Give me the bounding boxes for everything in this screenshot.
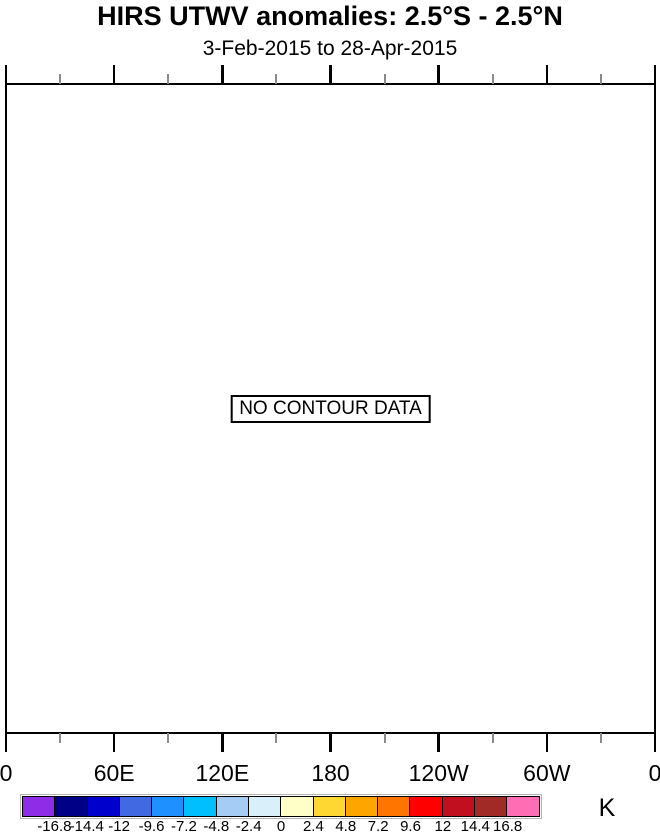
colorbar-tick-label: -12: [108, 818, 130, 834]
colorbar-tick-label: -14.4: [70, 818, 104, 834]
colorbar-tick-label: 2.4: [303, 818, 324, 834]
colorbar-cell: [22, 796, 56, 817]
top-minor-tick: [167, 74, 169, 84]
colorbar-cell: [248, 796, 282, 817]
colorbar-tick-label: 7.2: [368, 818, 389, 834]
plot-title: HIRS UTWV anomalies: 2.5°S - 2.5°N: [0, 1, 660, 32]
x-axis-tick-label: 180: [311, 760, 349, 787]
colorbar-cell: [216, 796, 250, 817]
bottom-minor-tick: [167, 733, 169, 743]
x-axis-tick-label: 60E: [94, 760, 135, 787]
colorbar-tick-label: 0: [277, 818, 285, 834]
colorbar-tick-label: 12: [435, 818, 452, 834]
x-axis-tick-label: 120E: [195, 760, 249, 787]
colorbar-cell: [442, 796, 476, 817]
top-major-tick: [546, 65, 549, 84]
bottom-minor-tick: [275, 733, 277, 743]
colorbar-tick-label: -9.6: [139, 818, 165, 834]
x-axis-tick-label: 120W: [409, 760, 469, 787]
colorbar-tick-label: -16.8: [37, 818, 71, 834]
x-axis-tick-label: 60W: [523, 760, 570, 787]
x-axis-tick-label: 0: [0, 760, 12, 787]
plot-frame: HIRS UTWV anomalies: 2.5°S - 2.5°N 3-Feb…: [0, 0, 660, 834]
colorbar-cell: [506, 796, 540, 817]
top-major-tick: [5, 65, 8, 84]
colorbar-unit-label: K: [585, 794, 629, 823]
colorbar-tick-label: 4.8: [335, 818, 356, 834]
bottom-minor-tick: [59, 733, 61, 743]
bottom-major-tick: [329, 733, 332, 752]
colorbar-cell: [345, 796, 379, 817]
colorbar-cell: [377, 796, 411, 817]
x-axis-tick-label: 0: [649, 760, 660, 787]
top-major-tick: [221, 65, 224, 84]
bottom-major-tick: [546, 733, 549, 752]
top-minor-tick: [492, 74, 494, 84]
colorbar-cell: [313, 796, 347, 817]
colorbar-cell: [409, 796, 443, 817]
top-minor-tick: [600, 74, 602, 84]
colorbar-cell: [87, 796, 121, 817]
top-minor-tick: [384, 74, 386, 84]
top-major-tick: [654, 65, 657, 84]
bottom-major-tick: [654, 733, 657, 752]
bottom-major-tick: [113, 733, 116, 752]
colorbar-tick-label: 9.6: [400, 818, 421, 834]
colorbar-cell: [474, 796, 508, 817]
top-major-tick: [329, 65, 332, 84]
bottom-major-tick: [5, 733, 8, 752]
colorbar-tick-label: -4.8: [203, 818, 229, 834]
colorbar-cell: [54, 796, 88, 817]
colorbar-cell: [183, 796, 217, 817]
bottom-minor-tick: [600, 733, 602, 743]
colorbar-cell: [280, 796, 314, 817]
plot-subtitle: 3-Feb-2015 to 28-Apr-2015: [0, 37, 660, 61]
colorbar-cell: [119, 796, 153, 817]
no-contour-data-box: NO CONTOUR DATA: [230, 395, 431, 423]
colorbar-tick-label: -2.4: [236, 818, 262, 834]
colorbar-tick-label: 16.8: [493, 818, 522, 834]
top-major-tick: [437, 65, 440, 84]
top-minor-tick: [275, 74, 277, 84]
bottom-minor-tick: [384, 733, 386, 743]
no-contour-data-label: NO CONTOUR DATA: [239, 398, 422, 419]
plot-area: NO CONTOUR DATA: [5, 83, 656, 734]
top-major-tick: [113, 65, 116, 84]
colorbar-cell: [151, 796, 185, 817]
bottom-major-tick: [437, 733, 440, 752]
bottom-major-tick: [221, 733, 224, 752]
top-minor-tick: [59, 74, 61, 84]
colorbar-tick-label: -7.2: [171, 818, 197, 834]
bottom-minor-tick: [492, 733, 494, 743]
colorbar-tick-label: 14.4: [461, 818, 490, 834]
colorbar: [22, 796, 540, 817]
